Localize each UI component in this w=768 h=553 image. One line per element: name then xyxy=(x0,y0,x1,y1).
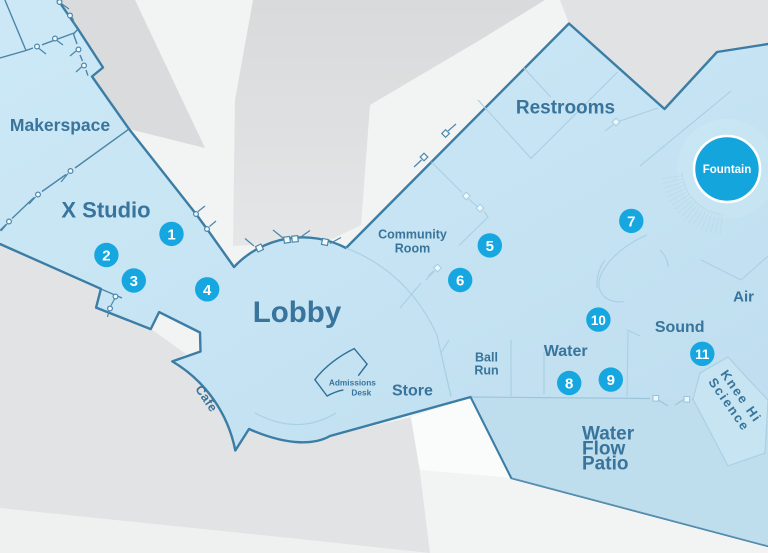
svg-text:Store: Store xyxy=(392,383,433,400)
svg-text:Restrooms: Restrooms xyxy=(516,98,615,119)
svg-text:Ball: Ball xyxy=(475,351,498,365)
svg-text:1: 1 xyxy=(167,226,175,243)
svg-text:Lobby: Lobby xyxy=(253,296,342,329)
svg-text:Makerspace: Makerspace xyxy=(10,115,110,135)
svg-text:Sound: Sound xyxy=(655,319,705,336)
svg-text:2: 2 xyxy=(102,248,110,265)
svg-text:X Studio: X Studio xyxy=(61,198,150,223)
svg-text:3: 3 xyxy=(130,273,138,290)
svg-text:Admissions: Admissions xyxy=(329,378,376,388)
svg-text:Community: Community xyxy=(378,228,447,242)
svg-text:Fountain: Fountain xyxy=(703,164,752,176)
svg-text:Air: Air xyxy=(733,289,754,306)
svg-text:Desk: Desk xyxy=(351,387,371,397)
svg-text:Run: Run xyxy=(474,364,498,378)
svg-text:Water: Water xyxy=(544,343,588,360)
svg-text:8: 8 xyxy=(565,376,573,393)
svg-text:Room: Room xyxy=(395,242,430,256)
svg-text:6: 6 xyxy=(456,273,464,290)
svg-text:Patio: Patio xyxy=(582,454,628,475)
svg-text:4: 4 xyxy=(203,282,212,299)
svg-text:7: 7 xyxy=(627,213,635,230)
svg-text:9: 9 xyxy=(607,372,615,389)
svg-text:10: 10 xyxy=(591,313,606,328)
svg-text:11: 11 xyxy=(695,347,710,362)
svg-text:5: 5 xyxy=(486,238,494,255)
